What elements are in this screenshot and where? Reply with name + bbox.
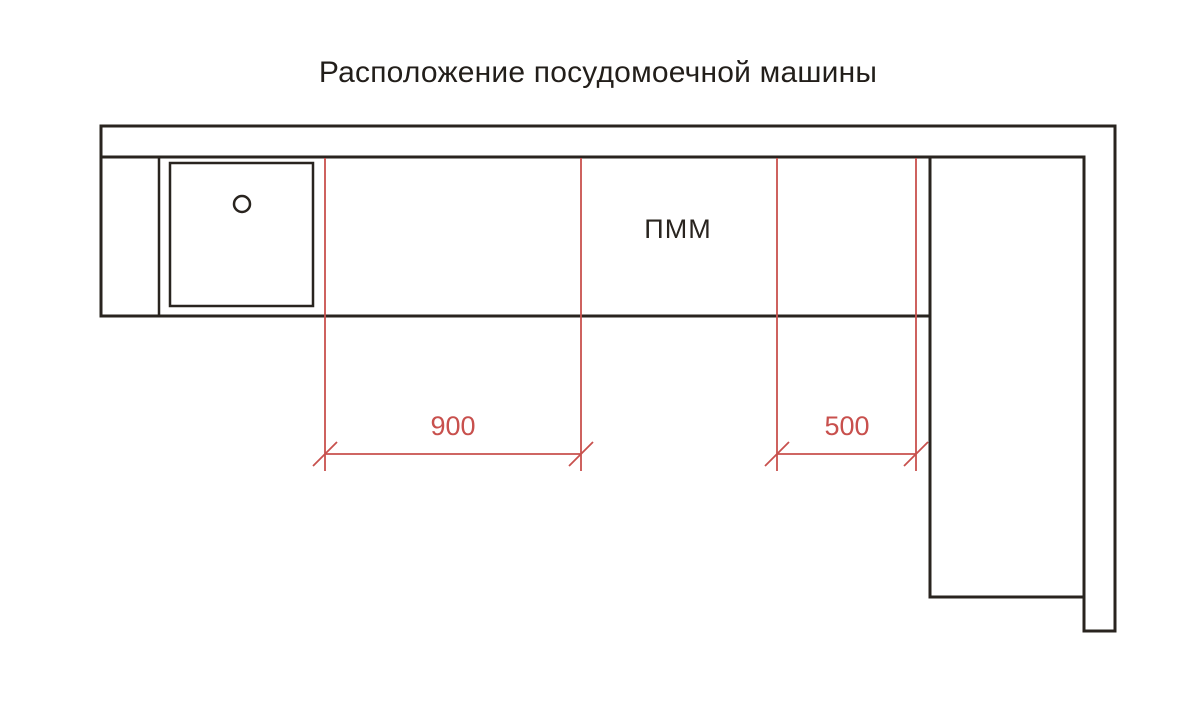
sink-drain-hole (234, 196, 250, 212)
dimension-value-500: 500 (824, 411, 869, 441)
diagram-canvas: Расположение посудомоечной машины (0, 0, 1201, 727)
kitchen-plan-drawing: ПММ 900 500 (0, 0, 1201, 727)
dishwasher-label: ПММ (644, 214, 711, 244)
sink-basin (170, 163, 313, 306)
dimension-value-900: 900 (430, 411, 475, 441)
wall-and-counter-lines (101, 126, 1115, 631)
